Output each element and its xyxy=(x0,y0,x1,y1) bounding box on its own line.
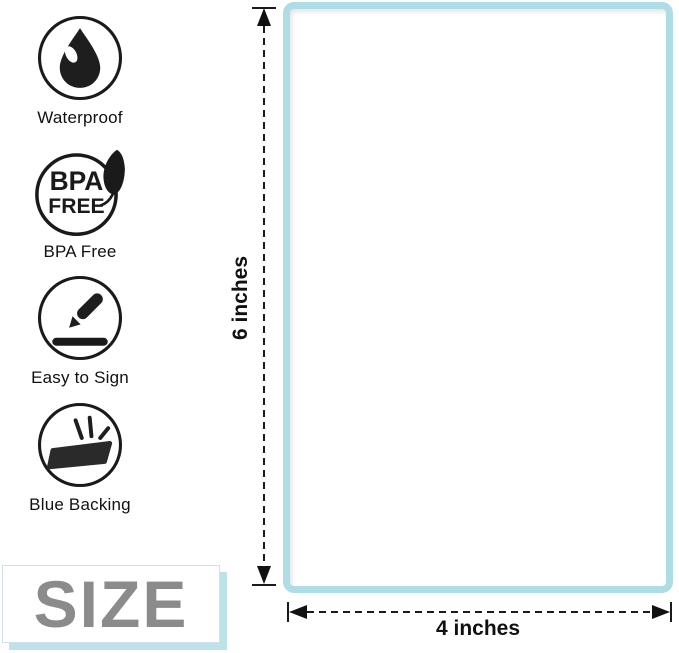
feature-label: Waterproof xyxy=(16,108,144,128)
feature-item-bpa-free: BPA FREE BPA Free xyxy=(16,148,144,262)
label-backing-icon xyxy=(26,401,134,489)
feature-label: BPA Free xyxy=(16,242,144,262)
feature-label: Easy to Sign xyxy=(16,368,144,388)
feature-label: Blue Backing xyxy=(16,495,144,515)
height-dimension-label: 6 inches xyxy=(229,238,253,358)
size-badge-label: SIZE xyxy=(34,571,189,637)
feature-item-waterproof: Waterproof xyxy=(16,14,144,128)
pencil-sign-icon xyxy=(26,274,134,362)
water-drop-icon xyxy=(26,14,134,102)
product-size-infographic: Waterproof BPA FREE BPA Free Easy to Sig… xyxy=(0,0,679,653)
bpa-free-leaf-icon: BPA FREE xyxy=(26,148,134,236)
bpa-badge-line2: FREE xyxy=(48,195,104,218)
size-badge: SIZE xyxy=(2,565,220,643)
feature-item-easy-to-sign: Easy to Sign xyxy=(16,274,144,388)
bpa-badge-line1: BPA xyxy=(50,166,104,196)
label-preview xyxy=(283,2,673,593)
width-dimension-label: 4 inches xyxy=(283,617,673,641)
feature-item-blue-backing: Blue Backing xyxy=(16,401,144,515)
